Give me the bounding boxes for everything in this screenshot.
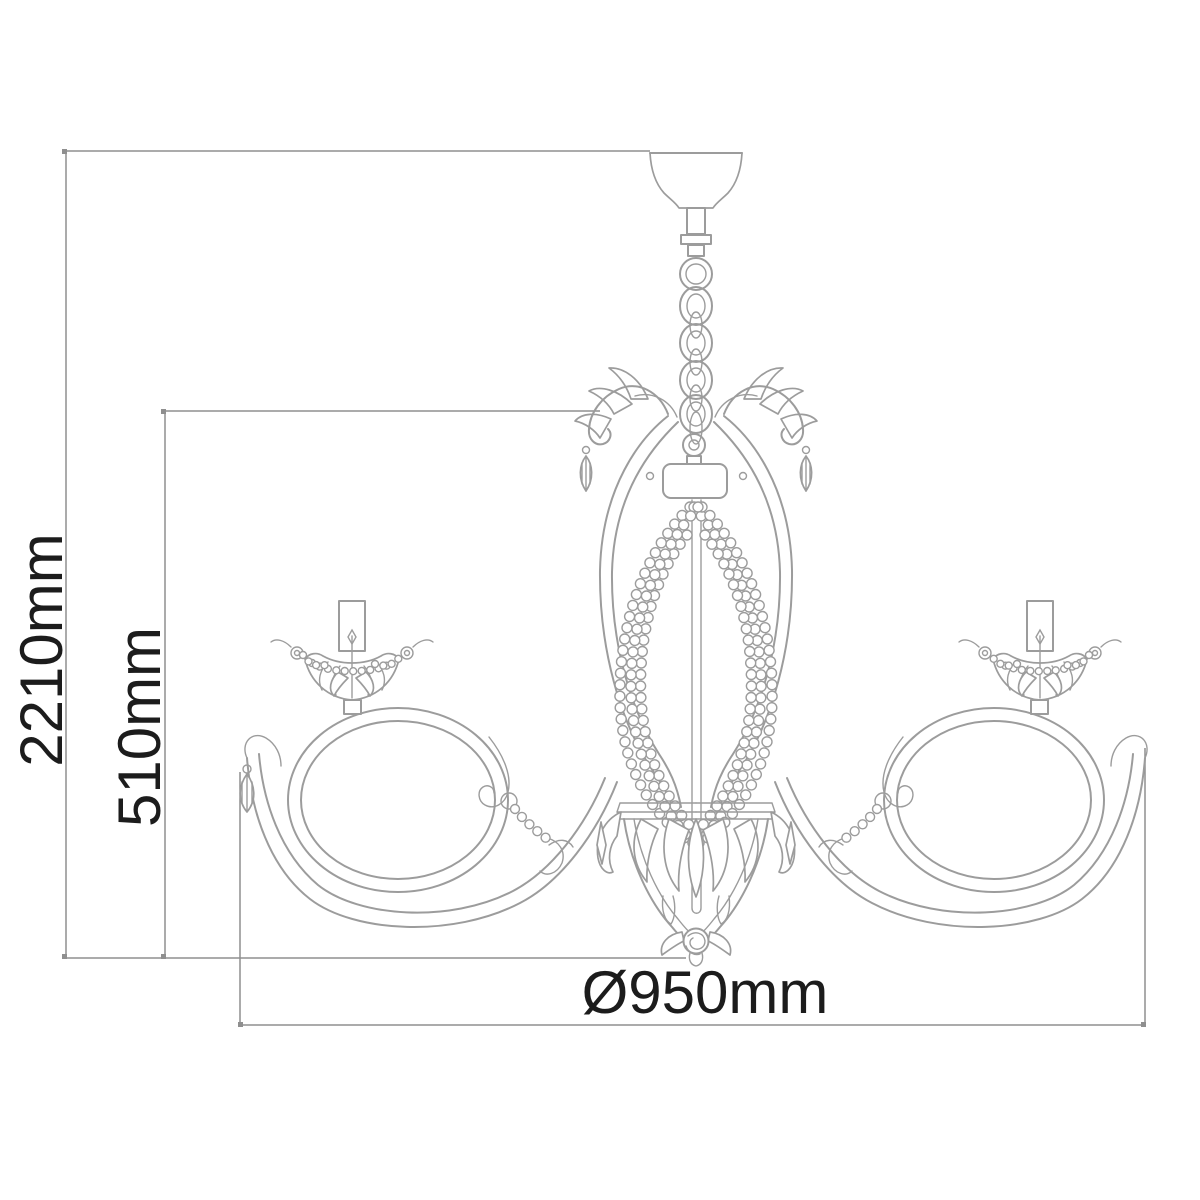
dimension-overall-height: 2210mm bbox=[8, 149, 686, 959]
hanging-chain bbox=[680, 258, 712, 444]
arm-tip-crystal-pendant bbox=[240, 765, 254, 812]
upper-scroll-left bbox=[575, 368, 677, 491]
dimension-tick bbox=[62, 149, 67, 154]
ceiling-canopy bbox=[650, 153, 742, 256]
dimension-tick bbox=[238, 1022, 243, 1027]
dimension-tick bbox=[62, 954, 67, 959]
dimension-tick bbox=[161, 954, 166, 959]
dimension-tick bbox=[1141, 1022, 1146, 1027]
upper-scroll-right bbox=[715, 368, 817, 491]
drop-height-label: 510mm bbox=[106, 627, 173, 827]
leaf-crown bbox=[597, 803, 696, 949]
diagram-canvas: 2210mm 510mm Ø950mm bbox=[0, 0, 1200, 1200]
overall-height-label: 2210mm bbox=[8, 533, 75, 766]
chandelier-arm-right bbox=[775, 601, 1147, 927]
chandelier-dimension-drawing: 2210mm 510mm Ø950mm bbox=[0, 0, 1200, 1200]
bead-strand bbox=[511, 805, 551, 843]
diameter-label: Ø950mm bbox=[582, 959, 829, 1026]
dimension-tick bbox=[161, 409, 166, 414]
chandelier-arm-left bbox=[245, 601, 617, 927]
leaf-crown-right bbox=[696, 803, 795, 949]
